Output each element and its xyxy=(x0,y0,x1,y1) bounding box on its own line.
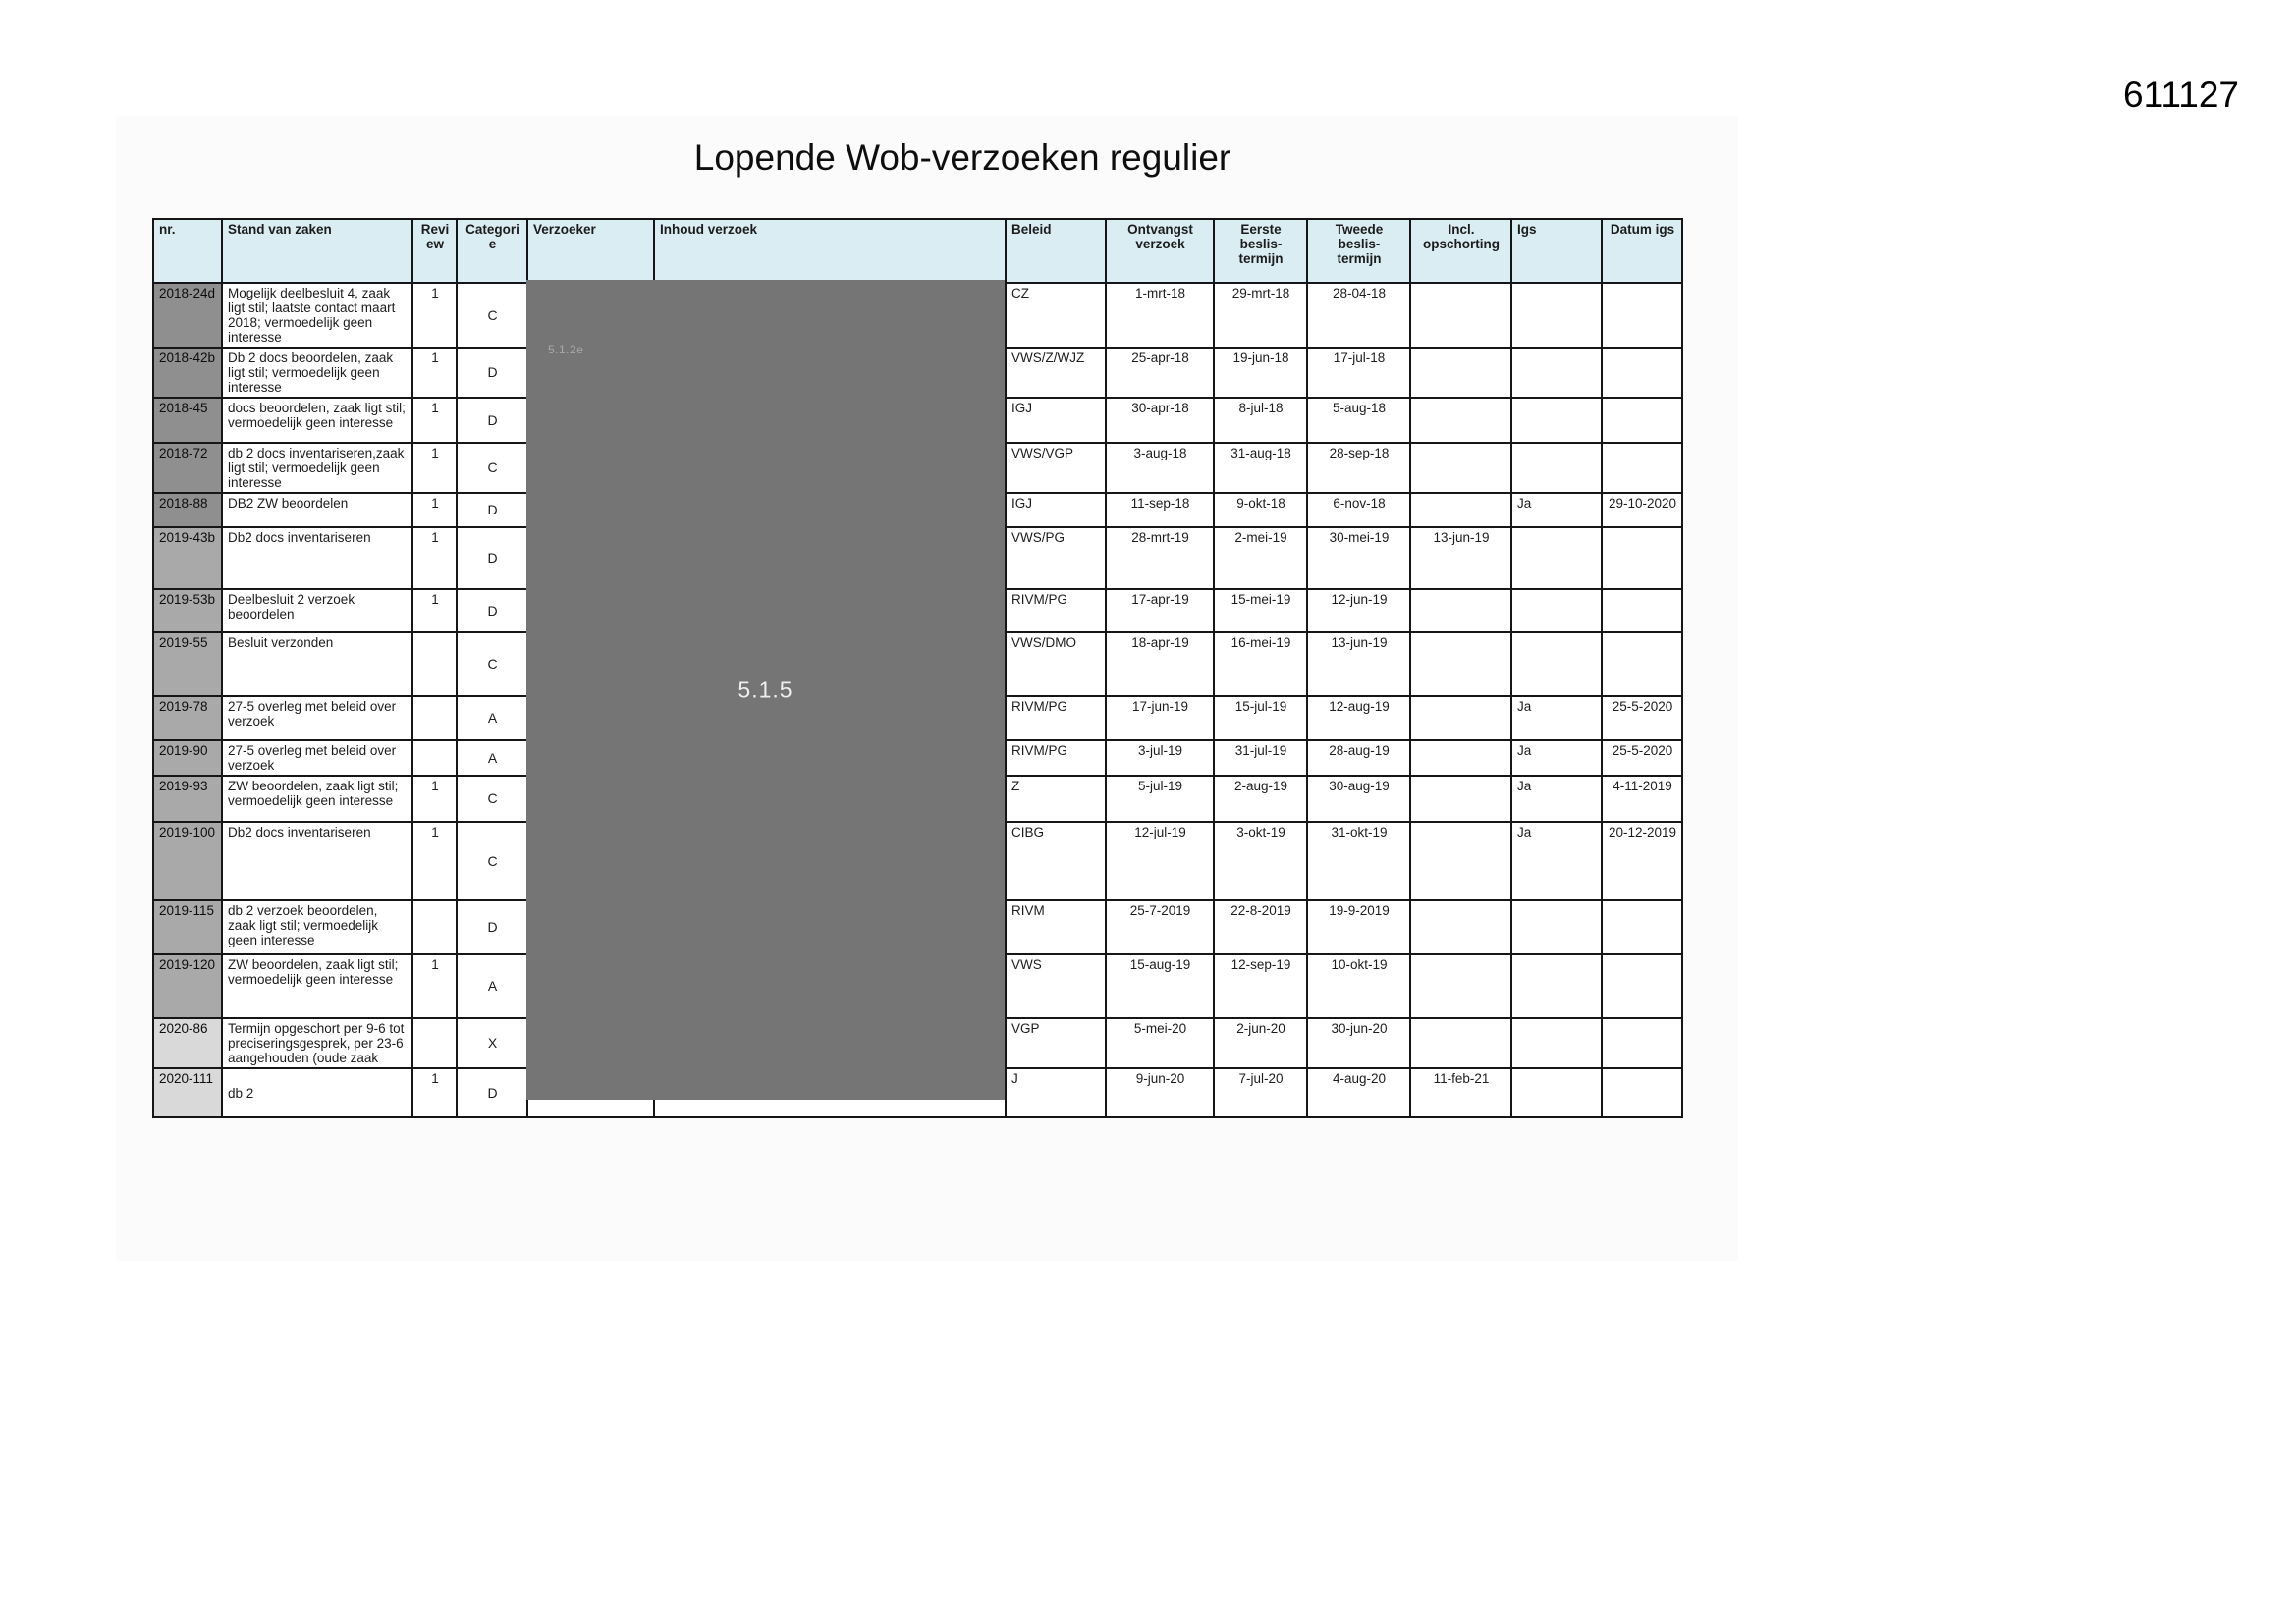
cell-igs xyxy=(1511,348,1602,398)
cell-nr: 2018-88 xyxy=(153,493,222,527)
cell-tweede: 28-04-18 xyxy=(1307,283,1410,348)
cell-tweede: 5-aug-18 xyxy=(1307,398,1410,443)
cell-ontvangst: 3-aug-18 xyxy=(1106,443,1214,493)
cell-beleid: J xyxy=(1006,1068,1106,1117)
cell-beleid: RIVM/PG xyxy=(1006,740,1106,776)
cell-stand: Db2 docs inventariseren xyxy=(222,527,412,589)
cell-ontvangst: 1-mrt-18 xyxy=(1106,283,1214,348)
cell-igs: Ja xyxy=(1511,776,1602,822)
cell-categorie: D xyxy=(457,527,527,589)
cell-beleid: VWS/PG xyxy=(1006,527,1106,589)
cell-categorie: D xyxy=(457,589,527,632)
cell-nr: 2019-93 xyxy=(153,776,222,822)
cell-tweede: 30-mei-19 xyxy=(1307,527,1410,589)
cell-stand: Db 2 docs beoordelen, zaak ligt stil; ve… xyxy=(222,348,412,398)
cell-stand: Termijn opgeschort per 9-6 tot preciseri… xyxy=(222,1018,412,1068)
cell-nr: 2018-42b xyxy=(153,348,222,398)
cell-igs xyxy=(1511,954,1602,1018)
cell-tweede: 10-okt-19 xyxy=(1307,954,1410,1018)
cell-categorie: D xyxy=(457,493,527,527)
cell-ontvangst: 5-jul-19 xyxy=(1106,776,1214,822)
cell-categorie: C xyxy=(457,776,527,822)
cell-tweede: 28-sep-18 xyxy=(1307,443,1410,493)
cell-eerste: 15-mei-19 xyxy=(1214,589,1307,632)
cell-nr: 2018-72 xyxy=(153,443,222,493)
cell-igs xyxy=(1511,632,1602,696)
cell-opschorting xyxy=(1410,348,1511,398)
cell-review xyxy=(412,696,457,740)
column-header-stand: Stand van zaken xyxy=(222,219,412,283)
cell-eerste: 7-jul-20 xyxy=(1214,1068,1307,1117)
cell-opschorting xyxy=(1410,398,1511,443)
cell-opschorting xyxy=(1410,1018,1511,1068)
cell-nr: 2018-24d xyxy=(153,283,222,348)
column-header-beleid: Beleid xyxy=(1006,219,1106,283)
cell-eerste: 2-jun-20 xyxy=(1214,1018,1307,1068)
cell-beleid: Z xyxy=(1006,776,1106,822)
cell-ontvangst: 25-7-2019 xyxy=(1106,900,1214,954)
cell-ontvangst: 9-jun-20 xyxy=(1106,1068,1214,1117)
cell-stand: Db2 docs inventariseren xyxy=(222,822,412,900)
cell-beleid: RIVM/PG xyxy=(1006,696,1106,740)
cell-beleid: VWS/Z/WJZ xyxy=(1006,348,1106,398)
redaction-ground-label: 5.1.2e xyxy=(548,343,583,356)
column-header-tweede: Tweede beslis- termijn xyxy=(1307,219,1410,283)
cell-eerste: 29-mrt-18 xyxy=(1214,283,1307,348)
cell-eerste: 12-sep-19 xyxy=(1214,954,1307,1018)
cell-stand: Mogelijk deelbesluit 4, zaak ligt stil; … xyxy=(222,283,412,348)
cell-review xyxy=(412,1018,457,1068)
cell-categorie: C xyxy=(457,283,527,348)
cell-datum-igs: 20-12-2019 xyxy=(1602,822,1682,900)
cell-igs: Ja xyxy=(1511,493,1602,527)
cell-opschorting xyxy=(1410,900,1511,954)
cell-opschorting xyxy=(1410,443,1511,493)
cell-tweede: 30-aug-19 xyxy=(1307,776,1410,822)
cell-categorie: C xyxy=(457,632,527,696)
cell-ontvangst: 17-apr-19 xyxy=(1106,589,1214,632)
cell-igs xyxy=(1511,1068,1602,1117)
column-header-verzoeker: Verzoeker xyxy=(527,219,654,283)
cell-categorie: D xyxy=(457,1068,527,1117)
cell-categorie: A xyxy=(457,954,527,1018)
cell-eerste: 2-aug-19 xyxy=(1214,776,1307,822)
cell-igs xyxy=(1511,589,1602,632)
cell-beleid: VWS xyxy=(1006,954,1106,1018)
cell-igs: Ja xyxy=(1511,696,1602,740)
cell-datum-igs xyxy=(1602,632,1682,696)
cell-review: 1 xyxy=(412,527,457,589)
cell-datum-igs xyxy=(1602,1018,1682,1068)
header-row: nr.Stand van zakenReviewCategorieVerzoek… xyxy=(153,219,1682,283)
cell-tweede: 30-jun-20 xyxy=(1307,1018,1410,1068)
cell-nr: 2018-45 xyxy=(153,398,222,443)
cell-nr: 2019-115 xyxy=(153,900,222,954)
cell-datum-igs: 29-10-2020 xyxy=(1602,493,1682,527)
cell-eerste: 16-mei-19 xyxy=(1214,632,1307,696)
cell-review: 1 xyxy=(412,443,457,493)
cell-eerste: 31-jul-19 xyxy=(1214,740,1307,776)
cell-stand: Besluit verzonden xyxy=(222,632,412,696)
cell-datum-igs xyxy=(1602,348,1682,398)
cell-tweede: 19-9-2019 xyxy=(1307,900,1410,954)
cell-categorie: X xyxy=(457,1018,527,1068)
cell-igs xyxy=(1511,1018,1602,1068)
cell-tweede: 28-aug-19 xyxy=(1307,740,1410,776)
cell-categorie: A xyxy=(457,696,527,740)
cell-nr: 2019-100 xyxy=(153,822,222,900)
cell-igs: Ja xyxy=(1511,822,1602,900)
cell-opschorting xyxy=(1410,493,1511,527)
cell-review xyxy=(412,900,457,954)
cell-nr: 2019-53b xyxy=(153,589,222,632)
cell-nr: 2019-90 xyxy=(153,740,222,776)
cell-review: 1 xyxy=(412,1068,457,1117)
cell-eerste: 19-jun-18 xyxy=(1214,348,1307,398)
cell-review xyxy=(412,740,457,776)
cell-datum-igs xyxy=(1602,527,1682,589)
cell-nr: 2019-43b xyxy=(153,527,222,589)
cell-beleid: VGP xyxy=(1006,1018,1106,1068)
cell-tweede: 12-aug-19 xyxy=(1307,696,1410,740)
cell-categorie: A xyxy=(457,740,527,776)
cell-eerste: 22-8-2019 xyxy=(1214,900,1307,954)
cell-nr: 2019-120 xyxy=(153,954,222,1018)
cell-review: 1 xyxy=(412,822,457,900)
cell-stand: db 2 verzoek beoordelen, zaak ligt stil;… xyxy=(222,900,412,954)
cell-beleid: IGJ xyxy=(1006,493,1106,527)
cell-ontvangst: 5-mei-20 xyxy=(1106,1018,1214,1068)
cell-beleid: CIBG xyxy=(1006,822,1106,900)
cell-tweede: 13-jun-19 xyxy=(1307,632,1410,696)
column-header-review: Review xyxy=(412,219,457,283)
cell-ontvangst: 28-mrt-19 xyxy=(1106,527,1214,589)
cell-categorie: D xyxy=(457,348,527,398)
cell-ontvangst: 17-jun-19 xyxy=(1106,696,1214,740)
column-header-datum-igs: Datum igs xyxy=(1602,219,1682,283)
cell-datum-igs xyxy=(1602,954,1682,1018)
cell-beleid: IGJ xyxy=(1006,398,1106,443)
cell-datum-igs xyxy=(1602,589,1682,632)
cell-opschorting: 13-jun-19 xyxy=(1410,527,1511,589)
column-header-nr: nr. xyxy=(153,219,222,283)
cell-nr: 2019-78 xyxy=(153,696,222,740)
cell-stand: 27-5 overleg met beleid over verzoek xyxy=(222,740,412,776)
cell-datum-igs: 4-11-2019 xyxy=(1602,776,1682,822)
cell-opschorting xyxy=(1410,589,1511,632)
cell-opschorting xyxy=(1410,822,1511,900)
cell-beleid: CZ xyxy=(1006,283,1106,348)
cell-eerste: 2-mei-19 xyxy=(1214,527,1307,589)
cell-datum-igs xyxy=(1602,1068,1682,1117)
cell-stand: Deelbesluit 2 verzoek beoordelen xyxy=(222,589,412,632)
cell-opschorting xyxy=(1410,954,1511,1018)
document-id-number: 611127 xyxy=(2090,75,2239,116)
cell-datum-igs: 25-5-2020 xyxy=(1602,696,1682,740)
cell-opschorting: 11-feb-21 xyxy=(1410,1068,1511,1117)
cell-stand: db 2 xyxy=(222,1068,412,1117)
cell-stand: 27-5 overleg met beleid over verzoek xyxy=(222,696,412,740)
cell-stand: docs beoordelen, zaak ligt stil; vermoed… xyxy=(222,398,412,443)
cell-review xyxy=(412,632,457,696)
cell-ontvangst: 30-apr-18 xyxy=(1106,398,1214,443)
cell-eerste: 8-jul-18 xyxy=(1214,398,1307,443)
cell-datum-igs xyxy=(1602,900,1682,954)
cell-stand: DB2 ZW beoordelen xyxy=(222,493,412,527)
cell-igs xyxy=(1511,900,1602,954)
cell-review: 1 xyxy=(412,398,457,443)
cell-categorie: C xyxy=(457,443,527,493)
column-header-categorie: Categorie xyxy=(457,219,527,283)
cell-nr: 2020-86 xyxy=(153,1018,222,1068)
cell-igs xyxy=(1511,443,1602,493)
cell-stand: db 2 docs inventariseren,zaak ligt stil;… xyxy=(222,443,412,493)
cell-igs: Ja xyxy=(1511,740,1602,776)
cell-tweede: 17-jul-18 xyxy=(1307,348,1410,398)
cell-igs xyxy=(1511,398,1602,443)
cell-stand: ZW beoordelen, zaak ligt stil; vermoedel… xyxy=(222,954,412,1018)
redaction-overlay: 5.1.2e 5.1.5 xyxy=(526,280,1005,1100)
cell-ontvangst: 11-sep-18 xyxy=(1106,493,1214,527)
cell-opschorting xyxy=(1410,740,1511,776)
cell-opschorting xyxy=(1410,283,1511,348)
cell-opschorting xyxy=(1410,632,1511,696)
cell-tweede: 6-nov-18 xyxy=(1307,493,1410,527)
column-header-inhoud: Inhoud verzoek xyxy=(654,219,1006,283)
cell-eerste: 15-jul-19 xyxy=(1214,696,1307,740)
cell-eerste: 9-okt-18 xyxy=(1214,493,1307,527)
cell-beleid: VWS/DMO xyxy=(1006,632,1106,696)
cell-opschorting xyxy=(1410,696,1511,740)
cell-ontvangst: 15-aug-19 xyxy=(1106,954,1214,1018)
cell-review: 1 xyxy=(412,589,457,632)
cell-stand: ZW beoordelen, zaak ligt stil; vermoedel… xyxy=(222,776,412,822)
cell-tweede: 4-aug-20 xyxy=(1307,1068,1410,1117)
cell-ontvangst: 18-apr-19 xyxy=(1106,632,1214,696)
table-header: nr.Stand van zakenReviewCategorieVerzoek… xyxy=(153,219,1682,283)
cell-nr: 2019-55 xyxy=(153,632,222,696)
cell-categorie: D xyxy=(457,900,527,954)
cell-beleid: RIVM/PG xyxy=(1006,589,1106,632)
cell-beleid: RIVM xyxy=(1006,900,1106,954)
column-header-ontvangst: Ontvangst verzoek xyxy=(1106,219,1214,283)
cell-opschorting xyxy=(1410,776,1511,822)
cell-review: 1 xyxy=(412,493,457,527)
cell-datum-igs xyxy=(1602,443,1682,493)
cell-igs xyxy=(1511,283,1602,348)
cell-nr: 2020-111 xyxy=(153,1068,222,1117)
cell-eerste: 3-okt-19 xyxy=(1214,822,1307,900)
redaction-ground-label-center: 5.1.5 xyxy=(738,677,793,703)
cell-igs xyxy=(1511,527,1602,589)
column-header-eerste: Eerste beslis- termijn xyxy=(1214,219,1307,283)
column-header-igs: Igs xyxy=(1511,219,1602,283)
cell-tweede: 31-okt-19 xyxy=(1307,822,1410,900)
cell-tweede: 12-jun-19 xyxy=(1307,589,1410,632)
cell-eerste: 31-aug-18 xyxy=(1214,443,1307,493)
cell-review: 1 xyxy=(412,954,457,1018)
cell-beleid: VWS/VGP xyxy=(1006,443,1106,493)
cell-review: 1 xyxy=(412,283,457,348)
cell-categorie: D xyxy=(457,398,527,443)
cell-categorie: C xyxy=(457,822,527,900)
cell-datum-igs xyxy=(1602,398,1682,443)
page-title: Lopende Wob-verzoeken regulier xyxy=(0,137,1925,179)
cell-datum-igs: 25-5-2020 xyxy=(1602,740,1682,776)
cell-ontvangst: 25-apr-18 xyxy=(1106,348,1214,398)
cell-review: 1 xyxy=(412,776,457,822)
column-header-opschorting: Incl. opschorting xyxy=(1410,219,1511,283)
cell-datum-igs xyxy=(1602,283,1682,348)
cell-review: 1 xyxy=(412,348,457,398)
cell-ontvangst: 12-jul-19 xyxy=(1106,822,1214,900)
cell-ontvangst: 3-jul-19 xyxy=(1106,740,1214,776)
